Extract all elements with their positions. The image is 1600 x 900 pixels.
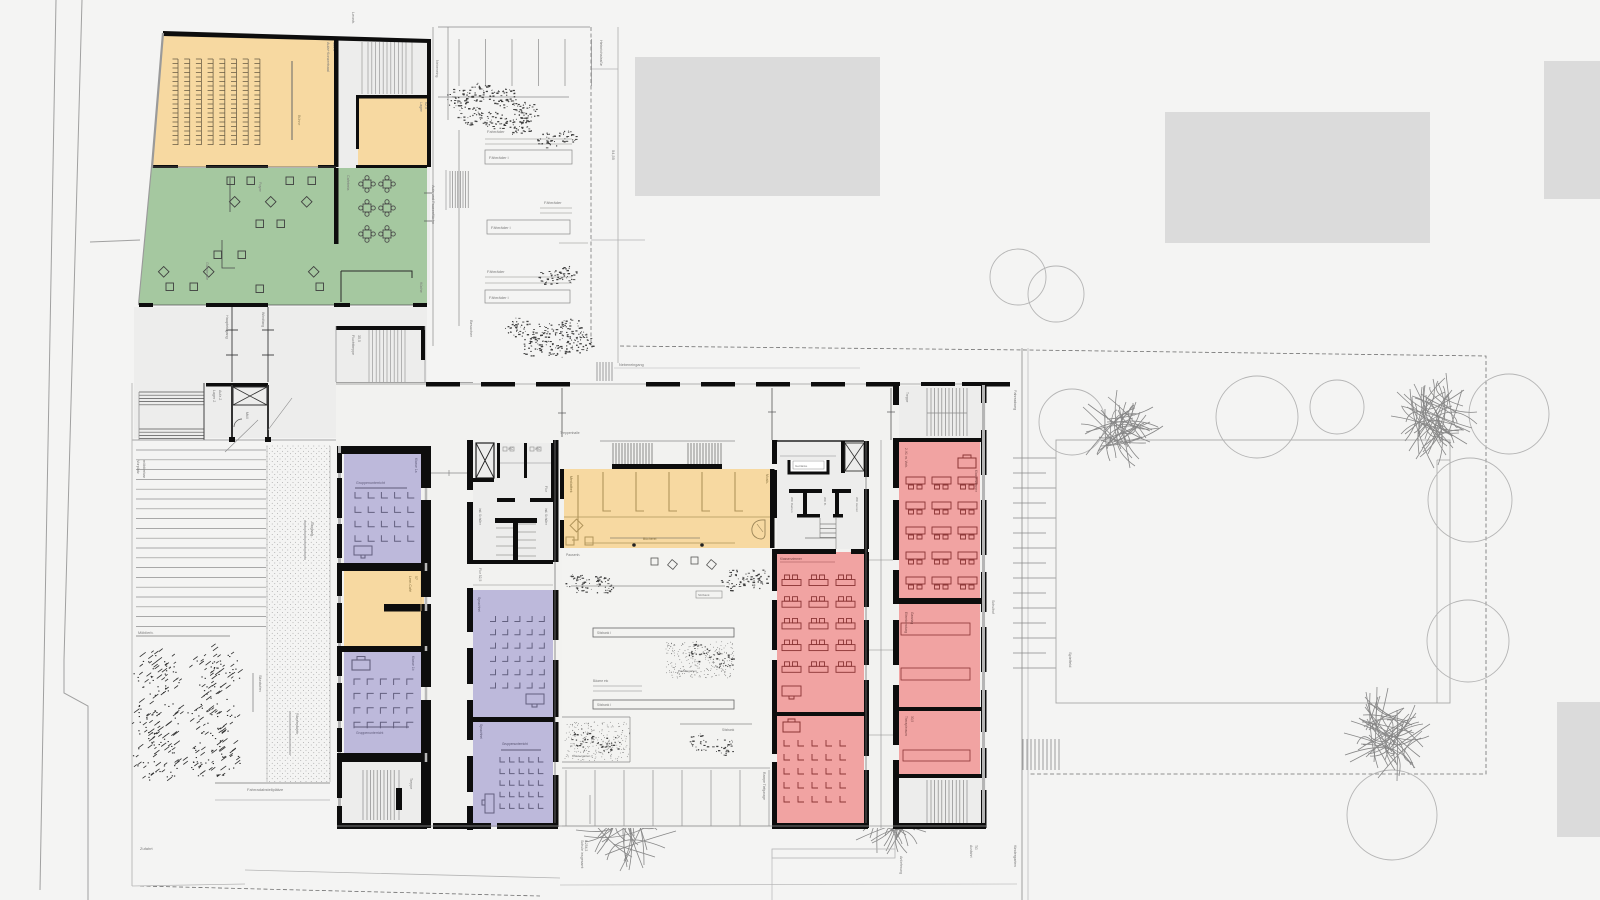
svg-text:Ganztag: Ganztag [910,612,914,624]
svg-text:Rampe Tiefgarage: Rampe Tiefgarage [762,772,766,800]
svg-text:TG: TG [974,845,978,850]
svg-text:Sprachhei: Sprachhei [477,597,481,612]
svg-text:Möblierb.: Möblierb. [138,631,154,635]
svg-text:Aula und Pausenfläche: Aula und Pausenfläche [431,185,435,224]
svg-text:Sprachhei: Sprachhei [479,724,483,739]
svg-text:Rasenstufen: Rasenstufen [295,713,299,734]
svg-text:30,5: 30,5 [910,716,914,722]
svg-text:Foyer: Foyer [258,182,262,192]
svg-text:Eingang: Eingang [310,522,314,536]
svg-text:Lager: Lager [419,102,423,112]
svg-text:Mediathek: Mediathek [569,476,573,493]
svg-text:Garderobe: Garderobe [205,262,209,280]
svg-text:Besucher: Besucher [469,320,474,338]
svg-text:WC: WC [508,447,514,451]
svg-text:möblierbar: möblierbar [142,460,146,479]
svg-text:Sitzbank: Sitzbank [722,728,735,732]
svg-text:Fahrräder: Fahrräder [487,129,505,134]
svg-text:Sitzbank i: Sitzbank i [597,631,611,635]
svg-text:Fährräder i: Fährräder i [489,295,509,300]
svg-text:Getränke: Getränke [795,464,808,468]
svg-text:Küche: Küche [419,282,423,293]
svg-text:Windfang: Windfang [261,312,265,327]
svg-text:Müll: Müll [245,412,249,419]
svg-text:WC B.: WC B. [823,497,827,506]
svg-text:Klasse 1b: Klasse 1b [411,656,415,671]
svg-text:Klasse 1a: Klasse 1a [414,458,418,473]
svg-text:Fahrradweg: Fahrradweg [1013,390,1017,410]
svg-text:Sitzbank i: Sitzbank i [597,703,611,707]
svg-text:Flur 52,5: Flur 52,5 [478,568,482,581]
svg-text:Klassenzimmer: Klassenzimmer [780,557,803,561]
svg-text:Kräutergarten: Kräutergarten [572,754,591,758]
svg-text:Lager 2: Lager 2 [212,390,216,402]
svg-text:Sitzstufen: Sitzstufen [258,675,262,692]
svg-text:35,5: 35,5 [357,335,361,342]
svg-text:8.254,3: 8.254,3 [584,840,588,851]
svg-text:Ausfahrt: Ausfahrt [969,845,973,858]
svg-text:Cafeteria: Cafeteria [346,175,350,191]
svg-text:Vorplatz: Vorplatz [136,460,140,474]
svg-text:Treppenhalle: Treppenhalle [560,431,580,435]
svg-text:Fährräder i: Fährräder i [491,225,511,230]
svg-text:Treppe: Treppe [905,392,909,402]
svg-text:Lern-Café: Lern-Café [408,576,412,592]
svg-text:WC Herren: WC Herren [855,497,859,512]
svg-text:Kindergarten: Kindergarten [1013,845,1017,867]
svg-text:Pausenh.: Pausenh. [566,553,580,557]
svg-text:Musik-: Musik- [765,474,769,484]
svg-text:Bäume etc: Bäume etc [593,679,609,683]
svg-text:Schulhof: Schulhof [991,600,995,614]
svg-text:Nebeneingang: Nebeneingang [619,363,644,367]
svg-text:Klassenzimmer: Klassenzimmer [974,470,978,493]
svg-text:Fluchttreppe: Fluchttreppe [351,335,355,355]
svg-text:WC: WC [535,447,541,451]
svg-text:Gruppenunterricht: Gruppenunterricht [356,481,385,485]
svg-text:Gruppenunterricht: Gruppenunterricht [502,742,528,746]
svg-text:Pausengarten: Pausengarten [678,669,697,673]
svg-text:Heinrichstraße: Heinrichstraße [599,40,604,67]
svg-text:Aufz.2: Aufz.2 [218,390,222,400]
svg-text:Aula+Konzertsaal: Aula+Konzertsaal [326,42,330,72]
svg-text:Fährräder i: Fährräder i [489,155,509,160]
svg-text:WC Damen: WC Damen [790,497,794,513]
svg-text:Bühne: Bühne [297,115,301,125]
svg-text:Elternberatung: Elternberatung [904,612,908,633]
svg-text:57: 57 [414,576,418,580]
svg-text:Fährräder: Fährräder [544,200,562,205]
svg-text:2. Kl. m. Vorb.: 2. Kl. m. Vorb. [904,448,908,468]
svg-text:ind. Schüler: ind. Schüler [544,508,548,526]
svg-text:Nebeneing.: Nebeneing. [435,60,439,78]
svg-text:Gruppenunterricht: Gruppenunterricht [356,731,383,735]
svg-text:Anlieferung: Anlieferung [899,856,903,874]
svg-text:Zufahrt: Zufahrt [140,846,154,851]
svg-text:Spielfeld: Spielfeld [1068,652,1073,667]
svg-text:Fährräder: Fährräder [487,269,505,274]
svg-text:Haupteingang: Haupteingang [225,315,229,339]
svg-text:ind. Schüler: ind. Schüler [478,508,482,526]
svg-text:Fahrradabstellplätze: Fahrradabstellplätze [247,787,284,792]
svg-text:Flur: Flur [544,486,548,493]
svg-text:Schule insgesamt: Schule insgesamt [580,840,584,868]
svg-text:Therapieraum: Therapieraum [904,716,908,736]
svg-text:Leonh.: Leonh. [351,12,356,24]
svg-text:Sitzbank: Sitzbank [698,593,710,597]
svg-text:Bücherei: Bücherei [643,537,657,541]
svg-text:Treppe: Treppe [409,778,413,789]
svg-text:54,55: 54,55 [611,150,616,161]
